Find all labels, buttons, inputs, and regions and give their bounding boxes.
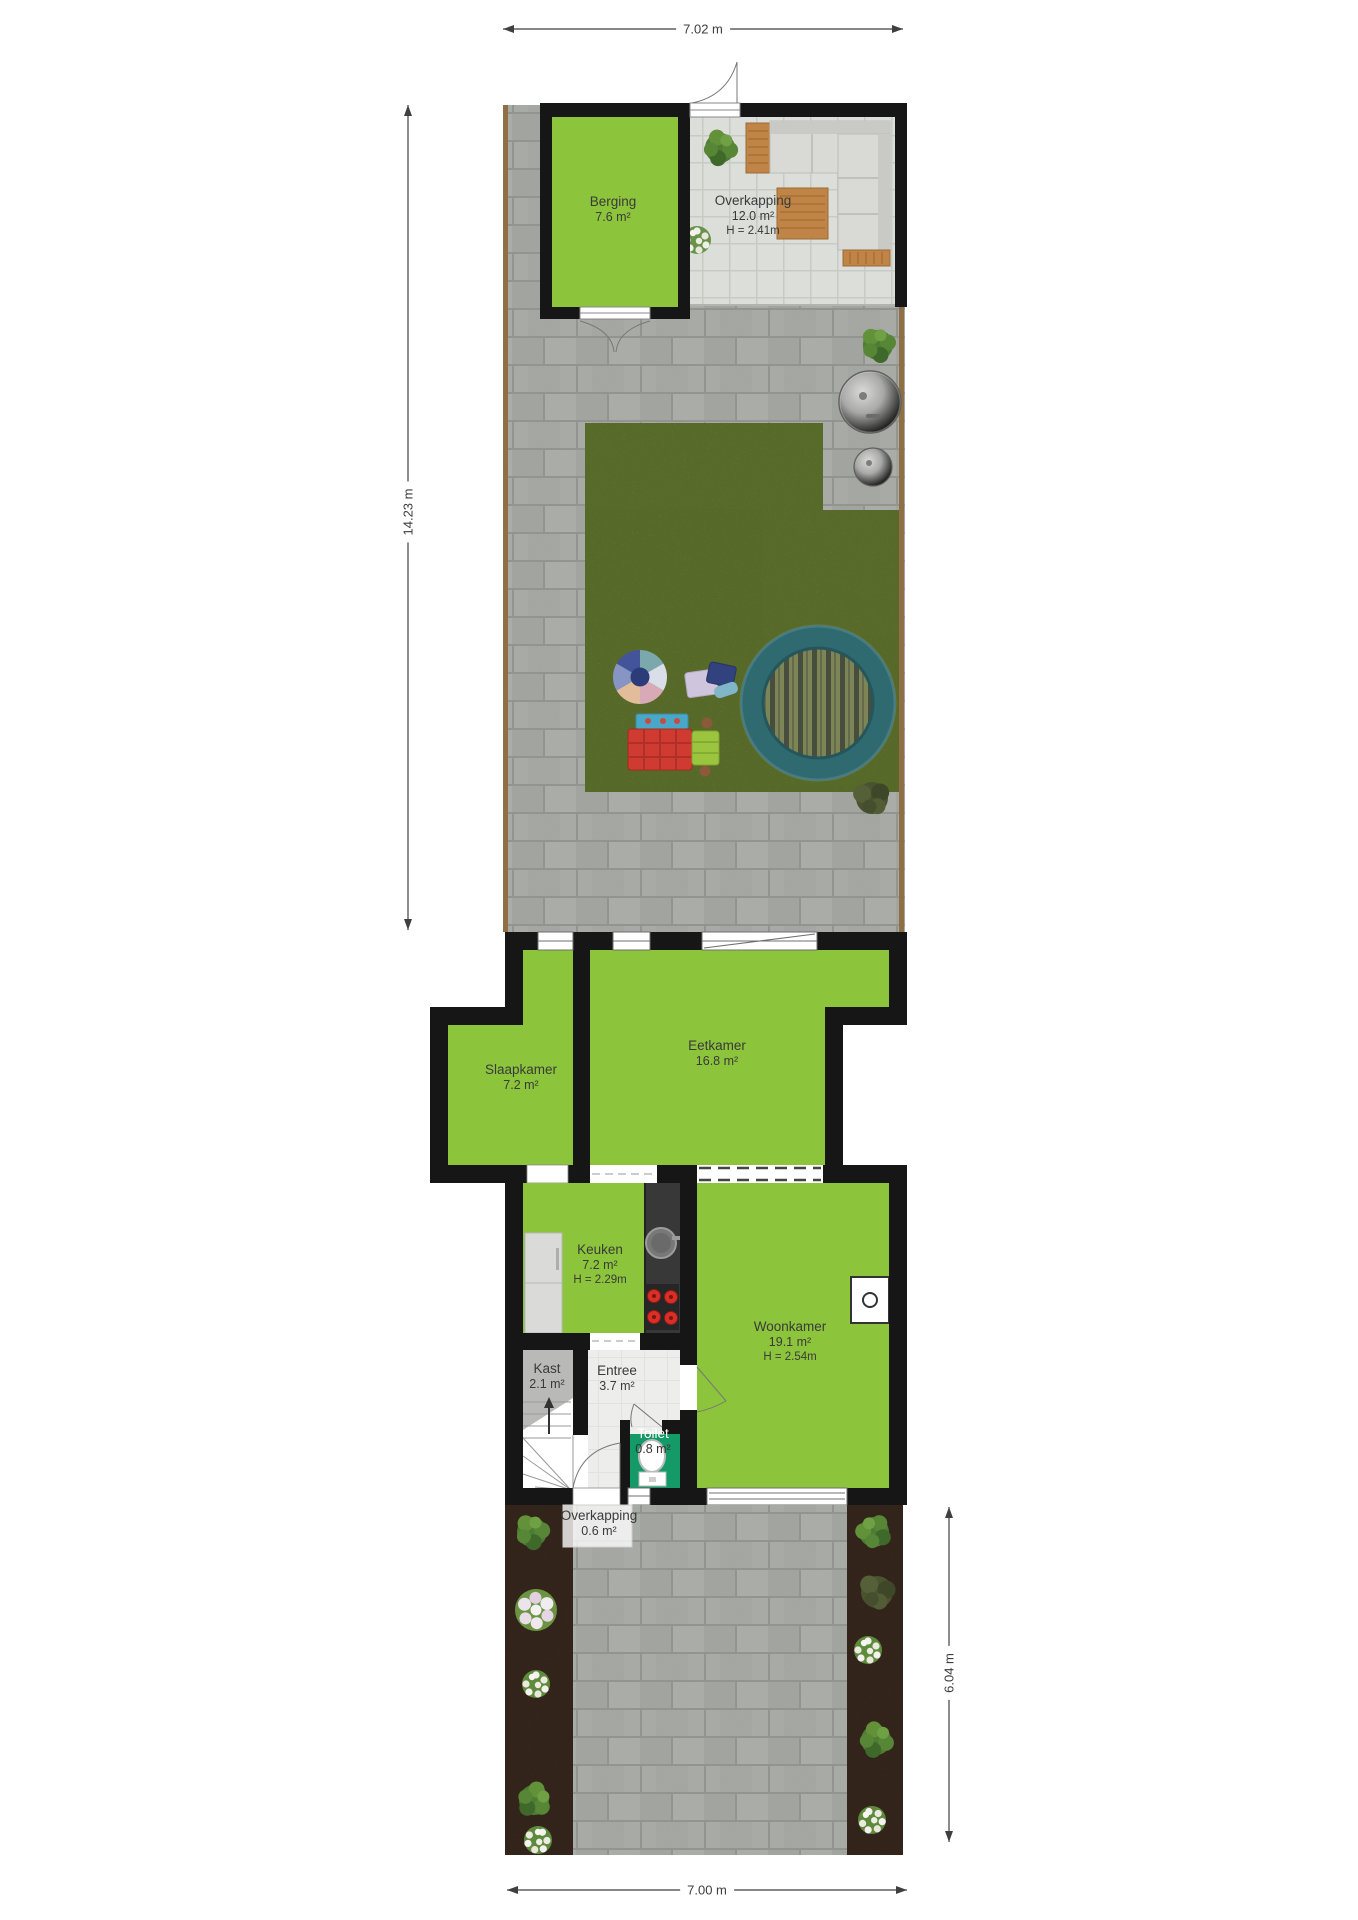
living-room-window <box>707 1488 847 1505</box>
beach-ball <box>613 650 667 704</box>
kitchen-cabinet <box>525 1233 562 1333</box>
overkapping-door <box>690 62 740 117</box>
room-label-slaapkamer: Slaapkamer 7.2 m² <box>485 1062 557 1093</box>
trampoline <box>740 625 896 781</box>
dimension-left: 14.23 m <box>400 482 417 543</box>
front-door-sill <box>573 1488 620 1505</box>
dimension-top: 7.02 m <box>676 21 730 38</box>
room-label-overkapping-achter: Overkapping 12.0 m² H = 2.41m <box>715 193 792 238</box>
fireplace <box>851 1277 889 1323</box>
left-fence <box>503 105 508 932</box>
dimension-right: 6.04 m <box>941 1646 958 1700</box>
room-label-kast: Kast 2.1 m² <box>529 1361 564 1392</box>
front-yard <box>505 1505 903 1859</box>
faucet <box>672 1236 681 1240</box>
room-label-woonkamer: Woonkamer 19.1 m² H = 2.54m <box>754 1319 827 1364</box>
kitchen-counter <box>644 1183 681 1333</box>
kids-picnic-table <box>628 714 692 770</box>
room-label-toilet: Toilet 0.8 m² <box>635 1426 670 1457</box>
floorplan-drawing <box>0 0 1358 1920</box>
fire-bowl-small <box>854 448 892 486</box>
room-label-berging: Berging 7.6 m² <box>590 194 637 225</box>
fire-bowl-large <box>839 371 901 433</box>
room-label-overkapping-voor: Overkapping 0.6 m² <box>561 1508 638 1539</box>
front-section <box>505 1165 907 1505</box>
room-label-keuken: Keuken 7.2 m² H = 2.29m <box>573 1242 626 1287</box>
floorplan-canvas: 7.02 m 14.23 m 6.04 m 7.00 m Berging 7.6… <box>0 0 1358 1920</box>
room-label-entree: Entree 3.7 m² <box>597 1363 637 1394</box>
dimension-bottom: 7.00 m <box>680 1882 734 1899</box>
room-label-eetkamer: Eetkamer 16.8 m² <box>688 1038 746 1069</box>
